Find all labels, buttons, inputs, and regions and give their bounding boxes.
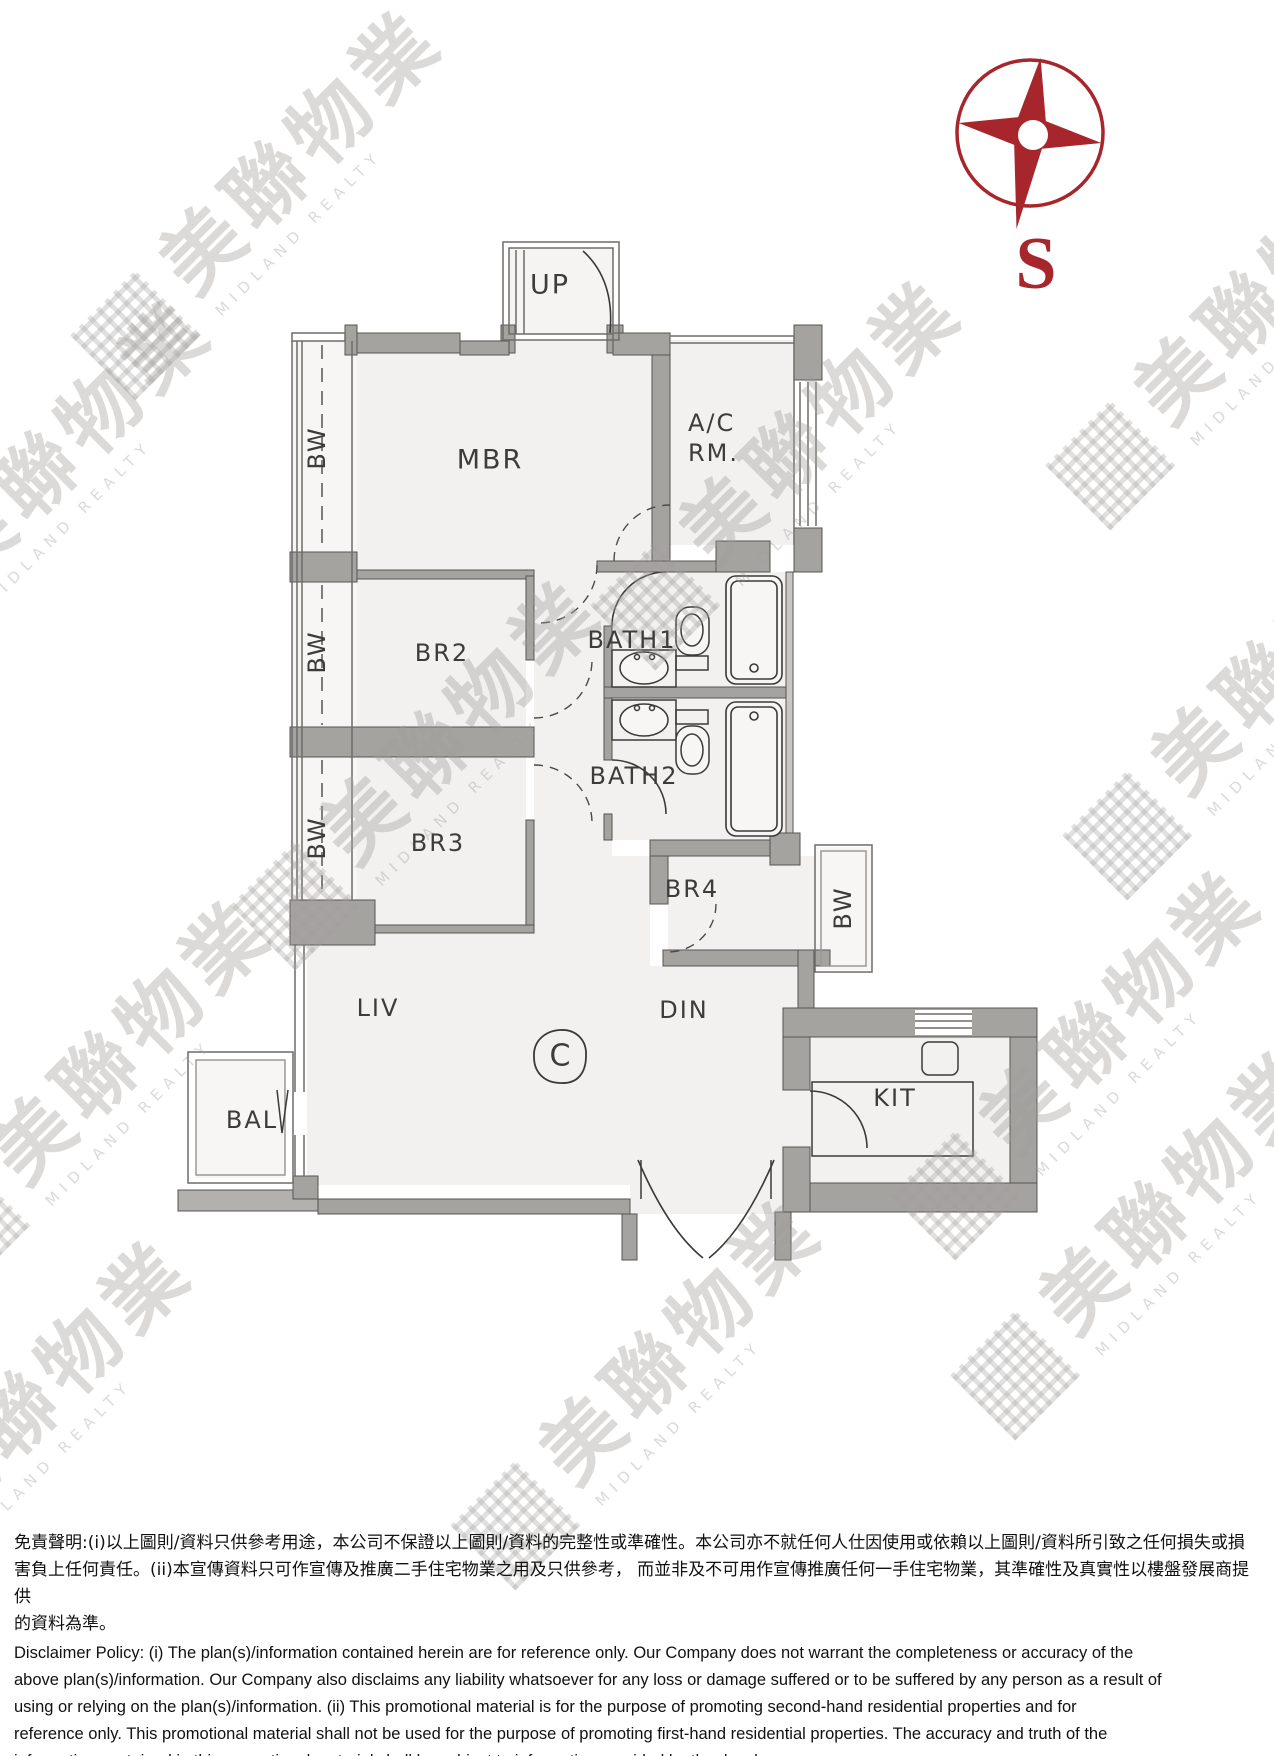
room-label-bal: BAL <box>226 1106 278 1134</box>
room-label-ac-rm: A/C RM. <box>688 408 739 468</box>
room-label-kit: KIT <box>873 1084 916 1112</box>
room-label-bath2: BATH2 <box>590 762 679 790</box>
room-label-bw-2: BW <box>303 630 331 673</box>
room-label-bw-1: BW <box>303 426 331 469</box>
room-label-din: DIN <box>659 996 709 1024</box>
room-label-bw-4: BW <box>829 886 857 929</box>
bathtub-icon <box>726 576 782 836</box>
room-label-bath1: BATH1 <box>588 626 677 654</box>
room-label-br2: BR2 <box>415 639 469 667</box>
disclaimer-section: 免責聲明:(i)以上圖則/資料只供參考用途，本公司不保證以上圖則/資料的完整性或… <box>14 1530 1266 1756</box>
room-label-bw-3: BW <box>303 816 331 859</box>
disclaimer-text-en: Disclaimer Policy: (i) The plan(s)/infor… <box>14 1640 1266 1756</box>
room-label-mbr: MBR <box>457 445 524 476</box>
floor-plan-page: S 美聯物業MIDLAND REALTY 美聯物業MIDLAND REALTY … <box>0 0 1274 1756</box>
room-label-up: UP <box>530 270 570 301</box>
room-label-br4: BR4 <box>665 875 719 903</box>
compass-icon <box>945 48 1112 239</box>
disclaimer-text-zh: 免責聲明:(i)以上圖則/資料只供參考用途，本公司不保證以上圖則/資料的完整性或… <box>14 1530 1266 1638</box>
floor-plan-drawing: S <box>0 0 1274 1756</box>
room-label-liv: LIV <box>357 994 400 1022</box>
unit-badge: C <box>550 1039 571 1074</box>
compass-south-label: S <box>1015 223 1056 305</box>
room-label-br3: BR3 <box>411 829 465 857</box>
